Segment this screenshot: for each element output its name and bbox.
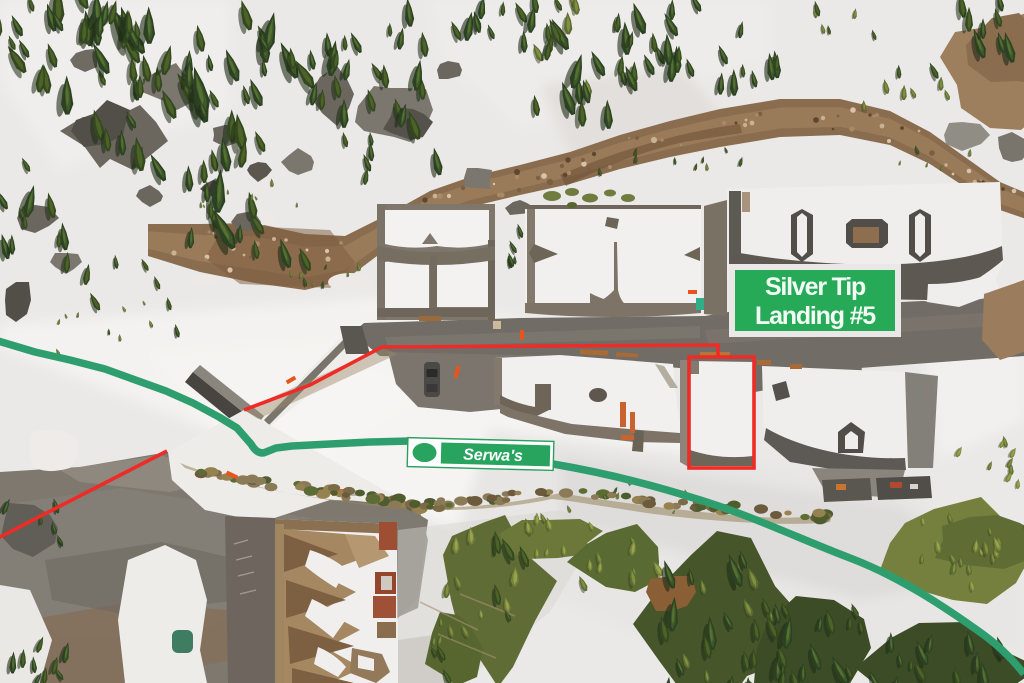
svg-text:Landing #5: Landing #5 — [755, 302, 876, 330]
svg-text:Silver Tip: Silver Tip — [765, 273, 866, 301]
svg-text:Serwa's: Serwa's — [463, 447, 523, 466]
